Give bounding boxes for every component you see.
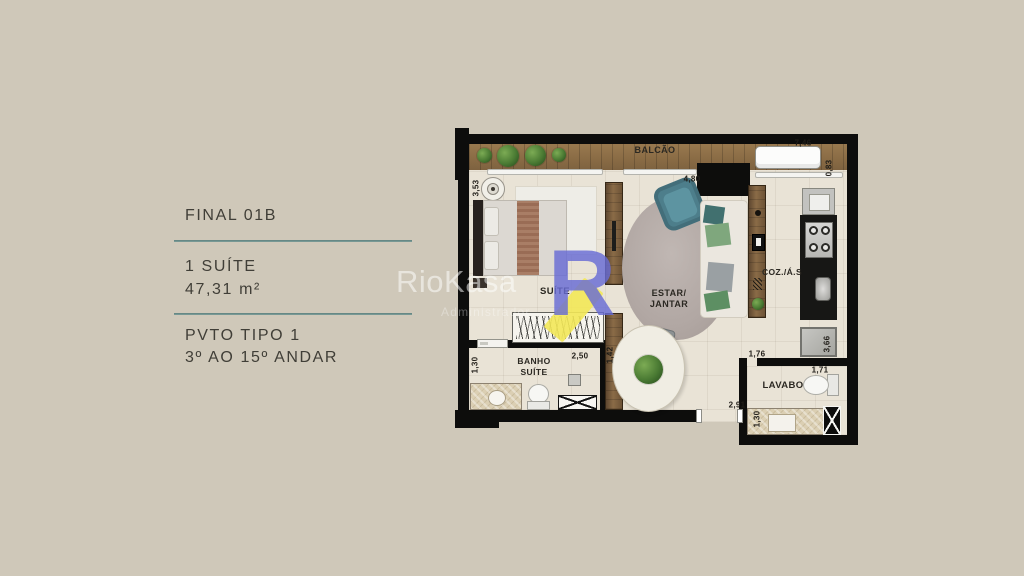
- dim-balcony-depth: 0,83: [825, 160, 834, 177]
- dim-suite-depth: 3,53: [472, 180, 481, 197]
- floor-type: PVTO TIPO 1: [185, 327, 301, 345]
- page: FINAL 01B 1 SUÍTE 47,31 m² PVTO TIPO 1 3…: [0, 0, 1024, 576]
- toilet-tank: [527, 401, 550, 410]
- table-plant-icon: [634, 355, 663, 384]
- label-bathroom: BANHO SUÍTE: [517, 356, 550, 377]
- burner: [809, 243, 818, 252]
- bathroom-basin: [488, 390, 506, 406]
- kitchen-sink: [802, 188, 835, 215]
- label-kitchen: COZ./Á.S: [762, 267, 802, 278]
- sofa-cushion: [705, 223, 732, 248]
- stove: [805, 222, 833, 258]
- entry-threshold: [701, 410, 739, 422]
- halfbath-basin: [768, 414, 796, 432]
- unit-type: 1 SUÍTE: [185, 258, 257, 276]
- label-living-1: ESTAR/: [652, 288, 687, 298]
- sofa-cushion: [706, 262, 734, 292]
- ceiling-fan-icon: [481, 177, 505, 201]
- wall-stub: [697, 163, 750, 196]
- sofa-cushion: [704, 290, 731, 312]
- shower-head: [568, 374, 581, 386]
- label-living-2: JANTAR: [650, 299, 688, 309]
- watermark-logo: R: [548, 236, 616, 330]
- dim-halfbath-top: 1,76: [749, 350, 766, 359]
- sink-basin: [809, 194, 830, 211]
- glass-door: [487, 169, 603, 175]
- burner: [821, 243, 830, 252]
- watermark-brand: RioKasa: [396, 264, 517, 300]
- dim-living-width: 4,80: [684, 175, 701, 184]
- dim-kitchen-depth: 3,66: [823, 336, 832, 353]
- wall-halfbath: [739, 435, 858, 445]
- sofa: [700, 200, 748, 318]
- shelf-frame: [752, 234, 765, 251]
- divider-line: [174, 313, 412, 315]
- bathroom-counter: [470, 383, 522, 410]
- dim-balcony-width: 7,46: [795, 139, 812, 148]
- label-living: ESTAR/ JANTAR: [650, 288, 688, 311]
- bed-pillow: [484, 207, 499, 236]
- shower-box: [558, 395, 597, 410]
- plant-icon: [552, 148, 566, 162]
- plant-icon: [752, 298, 764, 310]
- fan-dot: [491, 187, 495, 191]
- floor-range: 3º AO 15º ANDAR: [185, 349, 338, 367]
- label-halfbath: LAVABO: [762, 380, 803, 392]
- entry-door: [823, 406, 841, 435]
- kitchen-cylinder: [815, 277, 831, 301]
- burner: [809, 226, 818, 235]
- dim-bathroom-width: 2,50: [572, 352, 589, 361]
- bed-throw: [517, 201, 539, 275]
- sliding-door: [477, 339, 508, 348]
- wall-right: [847, 134, 858, 445]
- divider-line: [174, 240, 412, 242]
- unit-title: FINAL 01B: [185, 207, 277, 225]
- wall-bathroom: [458, 340, 477, 348]
- ac-unit: [755, 146, 821, 169]
- dim-living-bottom: 2,91: [729, 401, 746, 410]
- door-jamb: [696, 409, 702, 423]
- kitchen-counter: [800, 215, 837, 320]
- door-jamb: [737, 409, 743, 423]
- console-shelf: [748, 185, 766, 318]
- shelf-item: [755, 210, 761, 216]
- plant-icon: [477, 148, 492, 163]
- plant-icon: [497, 145, 519, 167]
- wall-corner: [455, 410, 499, 428]
- frame-inner: [756, 238, 761, 246]
- dim-halfbath-width: 1,71: [812, 366, 829, 375]
- wall-halfbath: [757, 358, 847, 366]
- sofa-cushion: [703, 205, 725, 226]
- shelf-decor: [753, 278, 762, 290]
- dining-table: [612, 325, 685, 412]
- burner: [821, 226, 830, 235]
- label-balcony: BALCÃO: [635, 145, 676, 156]
- unit-area: 47,31 m²: [185, 281, 261, 299]
- halfbath-toilet-bowl: [803, 375, 829, 395]
- door-handle: [480, 342, 488, 345]
- dim-console-length: 1,42: [606, 347, 615, 364]
- label-bathroom-1: BANHO: [517, 356, 550, 366]
- dim-bathroom-depth: 1,30: [471, 357, 480, 374]
- label-bathroom-2: SUÍTE: [520, 367, 547, 377]
- plant-icon: [525, 145, 546, 166]
- dim-halfbath-sink: 1,30: [753, 411, 762, 428]
- fan-hub: [487, 183, 499, 195]
- armchair-seat: [662, 186, 699, 224]
- watermark-subtitle: Administrador: [441, 305, 531, 319]
